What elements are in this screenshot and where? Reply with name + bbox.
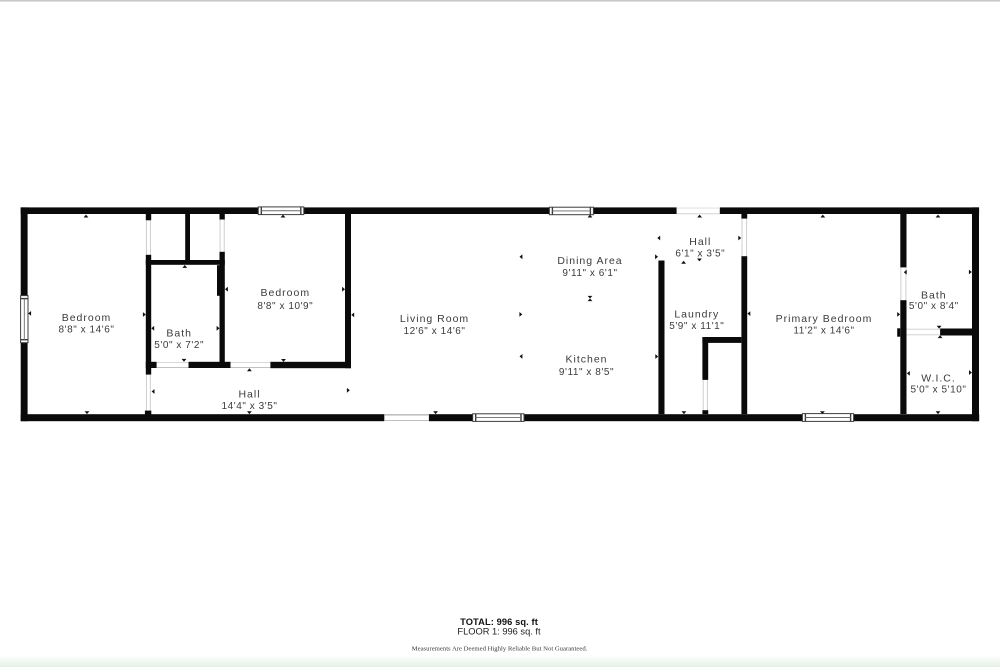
svg-text:Dining Area: Dining Area [557,255,622,267]
svg-text:Hall: Hall [689,236,711,248]
svg-text:9'11" x 6'1": 9'11" x 6'1" [562,268,617,279]
svg-text:Primary Bedroom: Primary Bedroom [776,313,873,325]
svg-text:6'1" x 3'5": 6'1" x 3'5" [675,249,725,260]
svg-text:5'0" x 8'4": 5'0" x 8'4" [909,301,959,312]
svg-text:FLOOR 1: 996 sq. ft: FLOOR 1: 996 sq. ft [457,627,541,637]
svg-text:Bath: Bath [921,289,947,301]
svg-text:5'0" x 7'2": 5'0" x 7'2" [154,340,204,351]
svg-text:12'6" x 14'6": 12'6" x 14'6" [404,326,466,337]
svg-text:Kitchen: Kitchen [565,354,607,366]
svg-text:5'0" x 5'10": 5'0" x 5'10" [911,384,967,395]
svg-text:W.I.C.: W.I.C. [921,373,956,385]
svg-text:8'8" x 14'6": 8'8" x 14'6" [59,325,115,336]
svg-text:Measurements Are Deemed Highly: Measurements Are Deemed Highly Reliable … [412,646,588,653]
svg-text:Laundry: Laundry [674,308,719,320]
svg-text:Hall: Hall [238,389,260,401]
svg-text:14'4" x 3'5": 14'4" x 3'5" [222,401,278,412]
svg-text:Bedroom: Bedroom [62,312,112,324]
svg-text:5'9" x 11'1": 5'9" x 11'1" [669,321,724,332]
svg-text:9'11" x 8'5": 9'11" x 8'5" [559,367,614,378]
svg-text:8'8" x 10'9": 8'8" x 10'9" [257,301,313,312]
svg-text:11'2" x 14'6": 11'2" x 14'6" [793,325,854,336]
svg-text:Living Room: Living Room [400,313,469,325]
svg-text:Bedroom: Bedroom [260,287,310,299]
svg-text:Bath: Bath [166,328,192,340]
